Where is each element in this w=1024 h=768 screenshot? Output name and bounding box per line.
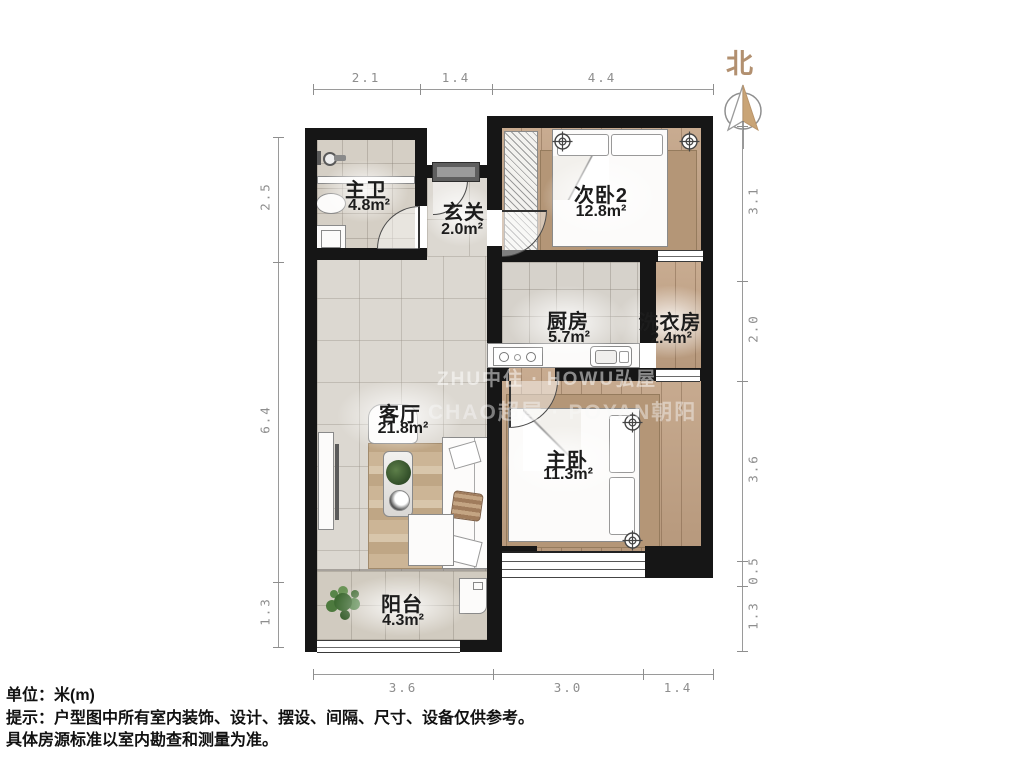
dim-tick [273, 137, 284, 138]
dim-top-0: 2.1 [352, 70, 381, 85]
decor-bowl [389, 490, 410, 511]
room-area-hallway: 2.0m² [441, 221, 483, 239]
dim-tick [737, 651, 748, 652]
dim-bottom-0: 3.6 [389, 680, 418, 695]
living-balcony-divider-line [317, 569, 487, 571]
wall-left-outer [305, 128, 317, 652]
wall-bath-bottom [305, 248, 427, 260]
table-plant [386, 460, 411, 485]
dim-line-left [278, 137, 279, 647]
footer-tip-line2: 具体房源标准以室内勘查和测量为准。 [6, 726, 278, 750]
dim-tick [492, 84, 493, 95]
dim-tick [420, 84, 421, 95]
wall-bedroom2-left-a [487, 116, 502, 210]
dim-tick [273, 262, 284, 263]
dim-tick [273, 582, 284, 583]
watermark-line1: ZHU中住 · HOWU弘屋 [437, 364, 657, 391]
room-area-bedroom2: 12.8m² [576, 203, 627, 221]
dim-right-2: 3.6 [746, 452, 761, 486]
sofa-ottoman [408, 514, 454, 566]
bedroom2-laundry-window [658, 250, 703, 262]
room-area-living: 21.8m² [378, 420, 429, 438]
room-area-kitchen: 5.7m² [548, 329, 590, 347]
dim-left-0: 2.5 [258, 180, 273, 214]
ceiling-light-icon [679, 131, 700, 152]
north-compass-icon [718, 82, 768, 152]
wall-kitchen-left [487, 262, 502, 343]
dim-right-1: 2.0 [746, 312, 761, 346]
wall-bay-corner-block [645, 546, 713, 578]
dim-tick [737, 126, 748, 127]
ceiling-light-icon [622, 530, 643, 551]
balcony-window [317, 640, 460, 653]
footer-tip-line1: 提示：户型图中所有室内装饰、设计、摆设、间隔、尺寸、设备仅供参考。 [6, 704, 534, 728]
tv-console [318, 432, 334, 530]
wall-right-outer [701, 116, 713, 552]
pillow [611, 134, 663, 156]
dim-tick [737, 381, 748, 382]
dim-right-3: 0.5 [746, 554, 761, 588]
dim-right-4: 1.3 [746, 599, 761, 633]
tv [335, 444, 339, 520]
ceiling-light-icon [552, 131, 573, 152]
dim-line-bottom [313, 674, 713, 675]
room-area-laundry: 2.4m² [650, 330, 692, 348]
dim-tick [737, 281, 748, 282]
dim-line-top [313, 89, 713, 90]
dim-bottom-2: 1.4 [664, 680, 693, 695]
north-label: 北 [726, 42, 753, 81]
dim-tick [643, 669, 644, 680]
dim-tick [713, 669, 714, 680]
room-area-master-bedroom: 11.3m² [543, 466, 593, 484]
sofa-pouf [450, 490, 484, 522]
laundry-south-window [656, 369, 700, 382]
dim-tick [313, 84, 314, 95]
watermark-line2: CHAO超屋 · POYAN朝阳 [428, 396, 697, 426]
dim-left-2: 1.3 [258, 595, 273, 629]
room-area-master-bath: 4.8m² [348, 197, 390, 215]
dim-tick [273, 647, 284, 648]
wall-bath-top [305, 128, 427, 140]
master-bay-window [502, 551, 645, 578]
dim-left-1: 6.4 [258, 403, 273, 437]
dim-top-2: 4.4 [588, 70, 617, 85]
dim-tick [313, 669, 314, 680]
coffee-table [383, 451, 413, 517]
dim-tick [493, 669, 494, 680]
floorplan-canvas: ZHU中住 · HOWU弘屋 CHAO超屋 · POYAN朝阳 主卫 4.8m²… [0, 0, 1024, 768]
wall-top-outer [487, 116, 713, 128]
wall-bath-right [415, 138, 427, 206]
dim-right-0: 3.1 [746, 184, 761, 218]
dim-tick [713, 84, 714, 95]
room-area-balcony: 4.3m² [382, 612, 424, 630]
entry-door [432, 162, 480, 182]
dim-top-1: 1.4 [442, 70, 471, 85]
dim-line-right [742, 126, 743, 651]
footer-unit-note: 单位：米(m) [6, 681, 95, 705]
dim-bottom-1: 3.0 [554, 680, 583, 695]
